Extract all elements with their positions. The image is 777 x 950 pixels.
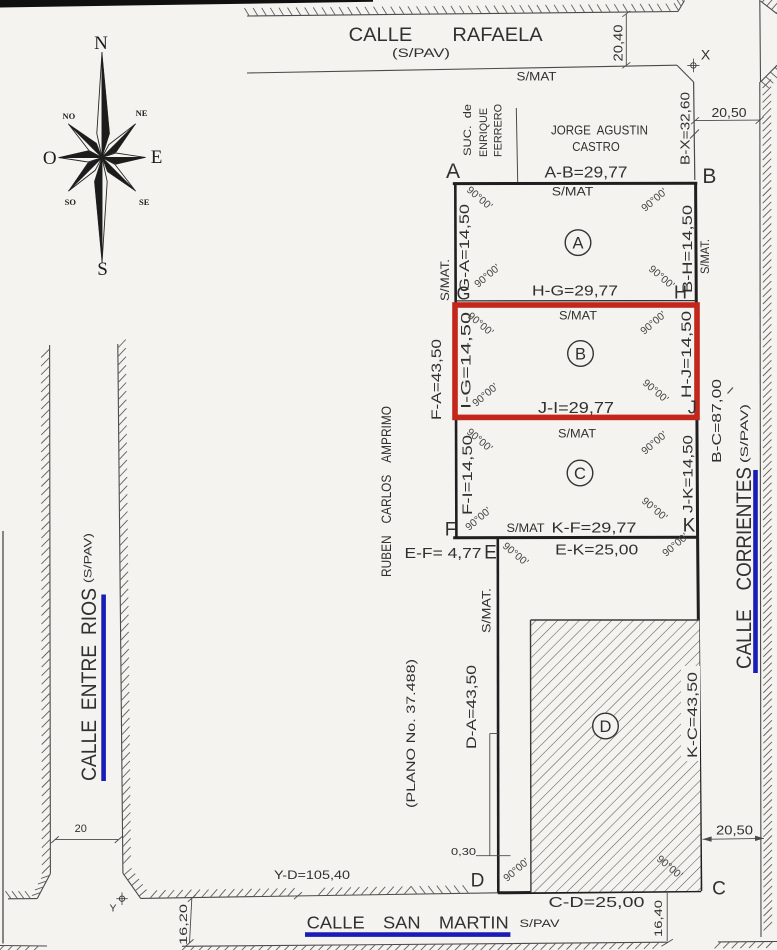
svg-text:(PLANO No. 37.488): (PLANO No. 37.488) [406,659,418,808]
svg-text:K-C=43,50: K-C=43,50 [684,672,700,758]
svg-text:FERRERO: FERRERO [493,104,505,157]
svg-text:D: D [600,718,612,736]
svg-text:C: C [712,879,726,900]
svg-text:SO: SO [65,197,77,207]
svg-text:20,40: 20,40 [612,24,626,61]
svg-text:F-I=14,50: F-I=14,50 [459,435,475,515]
svg-text:(S/PAV): (S/PAV) [83,533,95,583]
svg-text:S/MAT: S/MAT [559,311,597,323]
svg-text:NO: NO [63,111,76,121]
svg-text:H-J=14,50: H-J=14,50 [678,311,694,398]
svg-text:20,50: 20,50 [712,106,747,120]
svg-text:RUBEN CARLOS AMPRIMO: RUBEN CARLOS AMPRIMO [379,406,394,577]
svg-text:(S/PAV): (S/PAV) [739,404,751,463]
svg-text:J-K=14,50: J-K=14,50 [680,435,696,513]
svg-text:D: D [471,871,485,892]
svg-text:S/PAV: S/PAV [520,918,561,930]
svg-text:B: B [702,165,716,188]
svg-text:I-G=14,50: I-G=14,50 [458,312,474,409]
svg-text:E: E [484,543,497,564]
svg-text:16,20: 16,20 [178,904,190,945]
svg-text:20,50: 20,50 [716,824,753,838]
svg-text:S/MAT: S/MAT [507,523,545,535]
svg-text:B-C=87,00: B-C=87,00 [709,379,724,463]
svg-text:S/MAT: S/MAT [558,429,596,441]
svg-text:H-G=29,77: H-G=29,77 [532,284,618,300]
svg-text:SUC. de: SUC. de [462,104,474,156]
svg-text:16,40: 16,40 [653,900,665,937]
svg-text:C: C [574,465,586,483]
svg-text:O: O [43,148,57,169]
svg-text:K-F=29,77: K-F=29,77 [552,520,637,537]
svg-text:CALLE RAFAELA: CALLE RAFAELA [349,25,543,46]
svg-text:S/MAT.: S/MAT. [440,259,452,301]
svg-text:A-B=29,77: A-B=29,77 [545,164,628,181]
svg-text:ENRIQUE: ENRIQUE [478,108,490,157]
svg-text:S: S [97,259,108,280]
svg-text:NE: NE [136,108,148,118]
svg-text:G-A=14,50: G-A=14,50 [457,204,472,292]
svg-text:CALLE SAN MARTIN: CALLE SAN MARTIN [307,913,509,933]
svg-text:JORGE AGUSTIN: JORGE AGUSTIN [551,124,648,138]
svg-text:E-F= 4,77: E-F= 4,77 [405,545,482,562]
svg-text:Y-D=105,40: Y-D=105,40 [274,868,350,882]
svg-text:B: B [575,346,586,364]
svg-text:J-I=29,77: J-I=29,77 [538,400,614,417]
svg-text:E: E [151,147,163,168]
svg-text:S/MAT.: S/MAT. [482,588,494,633]
svg-text:X: X [701,47,711,63]
svg-text:N: N [94,33,108,54]
svg-text:S/MAT.: S/MAT. [700,239,712,274]
svg-text:E-K=25,00: E-K=25,00 [555,542,638,559]
svg-text:SE: SE [139,197,150,207]
svg-text:CASTRO: CASTRO [572,140,620,154]
svg-text:0,30: 0,30 [451,846,476,858]
svg-text:B-X=32,60: B-X=32,60 [679,92,693,165]
svg-text:J: J [688,398,697,418]
svg-text:F-A=43,50: F-A=43,50 [428,339,444,420]
svg-text:(S/PAV): (S/PAV) [392,48,450,60]
svg-text:C-D=25,00: C-D=25,00 [549,895,645,911]
svg-text:S/MAT: S/MAT [517,72,557,84]
svg-text:D-A=43,50: D-A=43,50 [463,665,479,749]
svg-text:CALLE CORRIENTES: CALLE CORRIENTES [733,467,756,669]
svg-text:Y: Y [109,903,116,915]
svg-text:CALLE ENTRE RIOS: CALLE ENTRE RIOS [78,588,101,781]
svg-text:F: F [445,520,457,541]
svg-text:20: 20 [75,823,87,835]
svg-text:B-H=14,50: B-H=14,50 [680,205,695,293]
svg-text:A: A [446,160,460,183]
svg-text:A: A [572,235,583,253]
svg-text:S/MAT: S/MAT [552,187,594,199]
